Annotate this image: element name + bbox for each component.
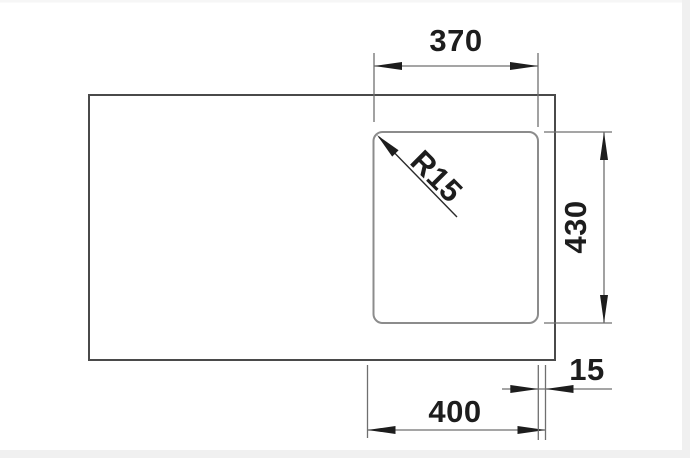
dim-370-label: 370 xyxy=(429,23,482,58)
dim-400-arrow-right xyxy=(518,426,546,434)
dim-15-arrow-left xyxy=(510,385,538,393)
technical-drawing-canvas: 370 430 400 15 R15 xyxy=(0,0,690,458)
page-edge-band-right xyxy=(682,0,690,458)
dim-370-arrow-left xyxy=(374,62,402,70)
page-edge-band-top xyxy=(0,0,690,3)
dim-430-arrow-bottom xyxy=(600,295,608,323)
dim-400-arrow-left xyxy=(368,426,396,434)
dim-430-label: 430 xyxy=(558,200,593,253)
page-edge-band-bottom xyxy=(0,450,690,458)
dim-15-label: 15 xyxy=(569,352,604,387)
dim-430-arrow-top xyxy=(600,132,608,160)
dim-370-arrow-right xyxy=(510,62,538,70)
dim-400-label: 400 xyxy=(428,394,481,429)
sink-outer-outline xyxy=(89,95,555,360)
sink-dimension-drawing: 370 430 400 15 R15 xyxy=(0,0,690,458)
